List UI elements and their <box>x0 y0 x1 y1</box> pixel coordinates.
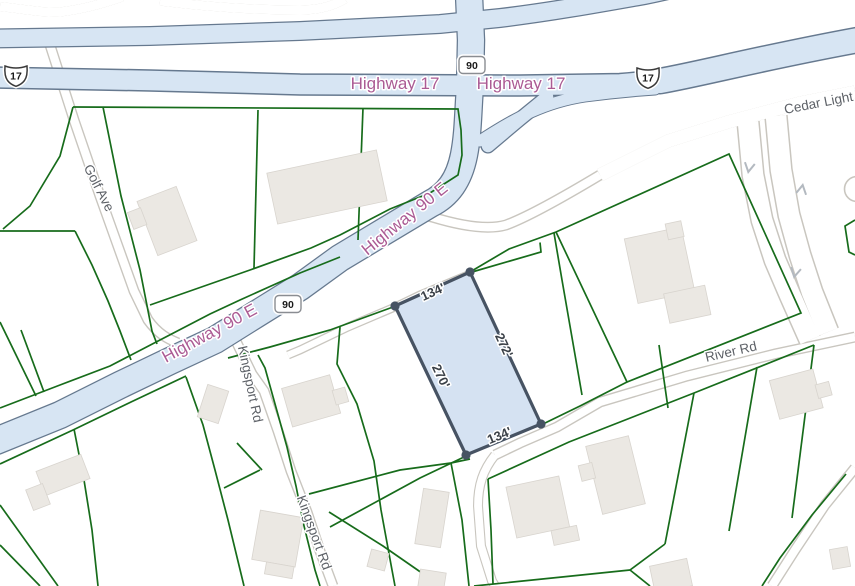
svg-text:90: 90 <box>466 60 478 72</box>
svg-text:17: 17 <box>642 73 654 85</box>
svg-text:90: 90 <box>282 299 294 311</box>
svg-text:Highway 17: Highway 17 <box>351 74 440 93</box>
svg-text:Highway 17: Highway 17 <box>477 74 566 93</box>
svg-text:17: 17 <box>10 71 22 83</box>
